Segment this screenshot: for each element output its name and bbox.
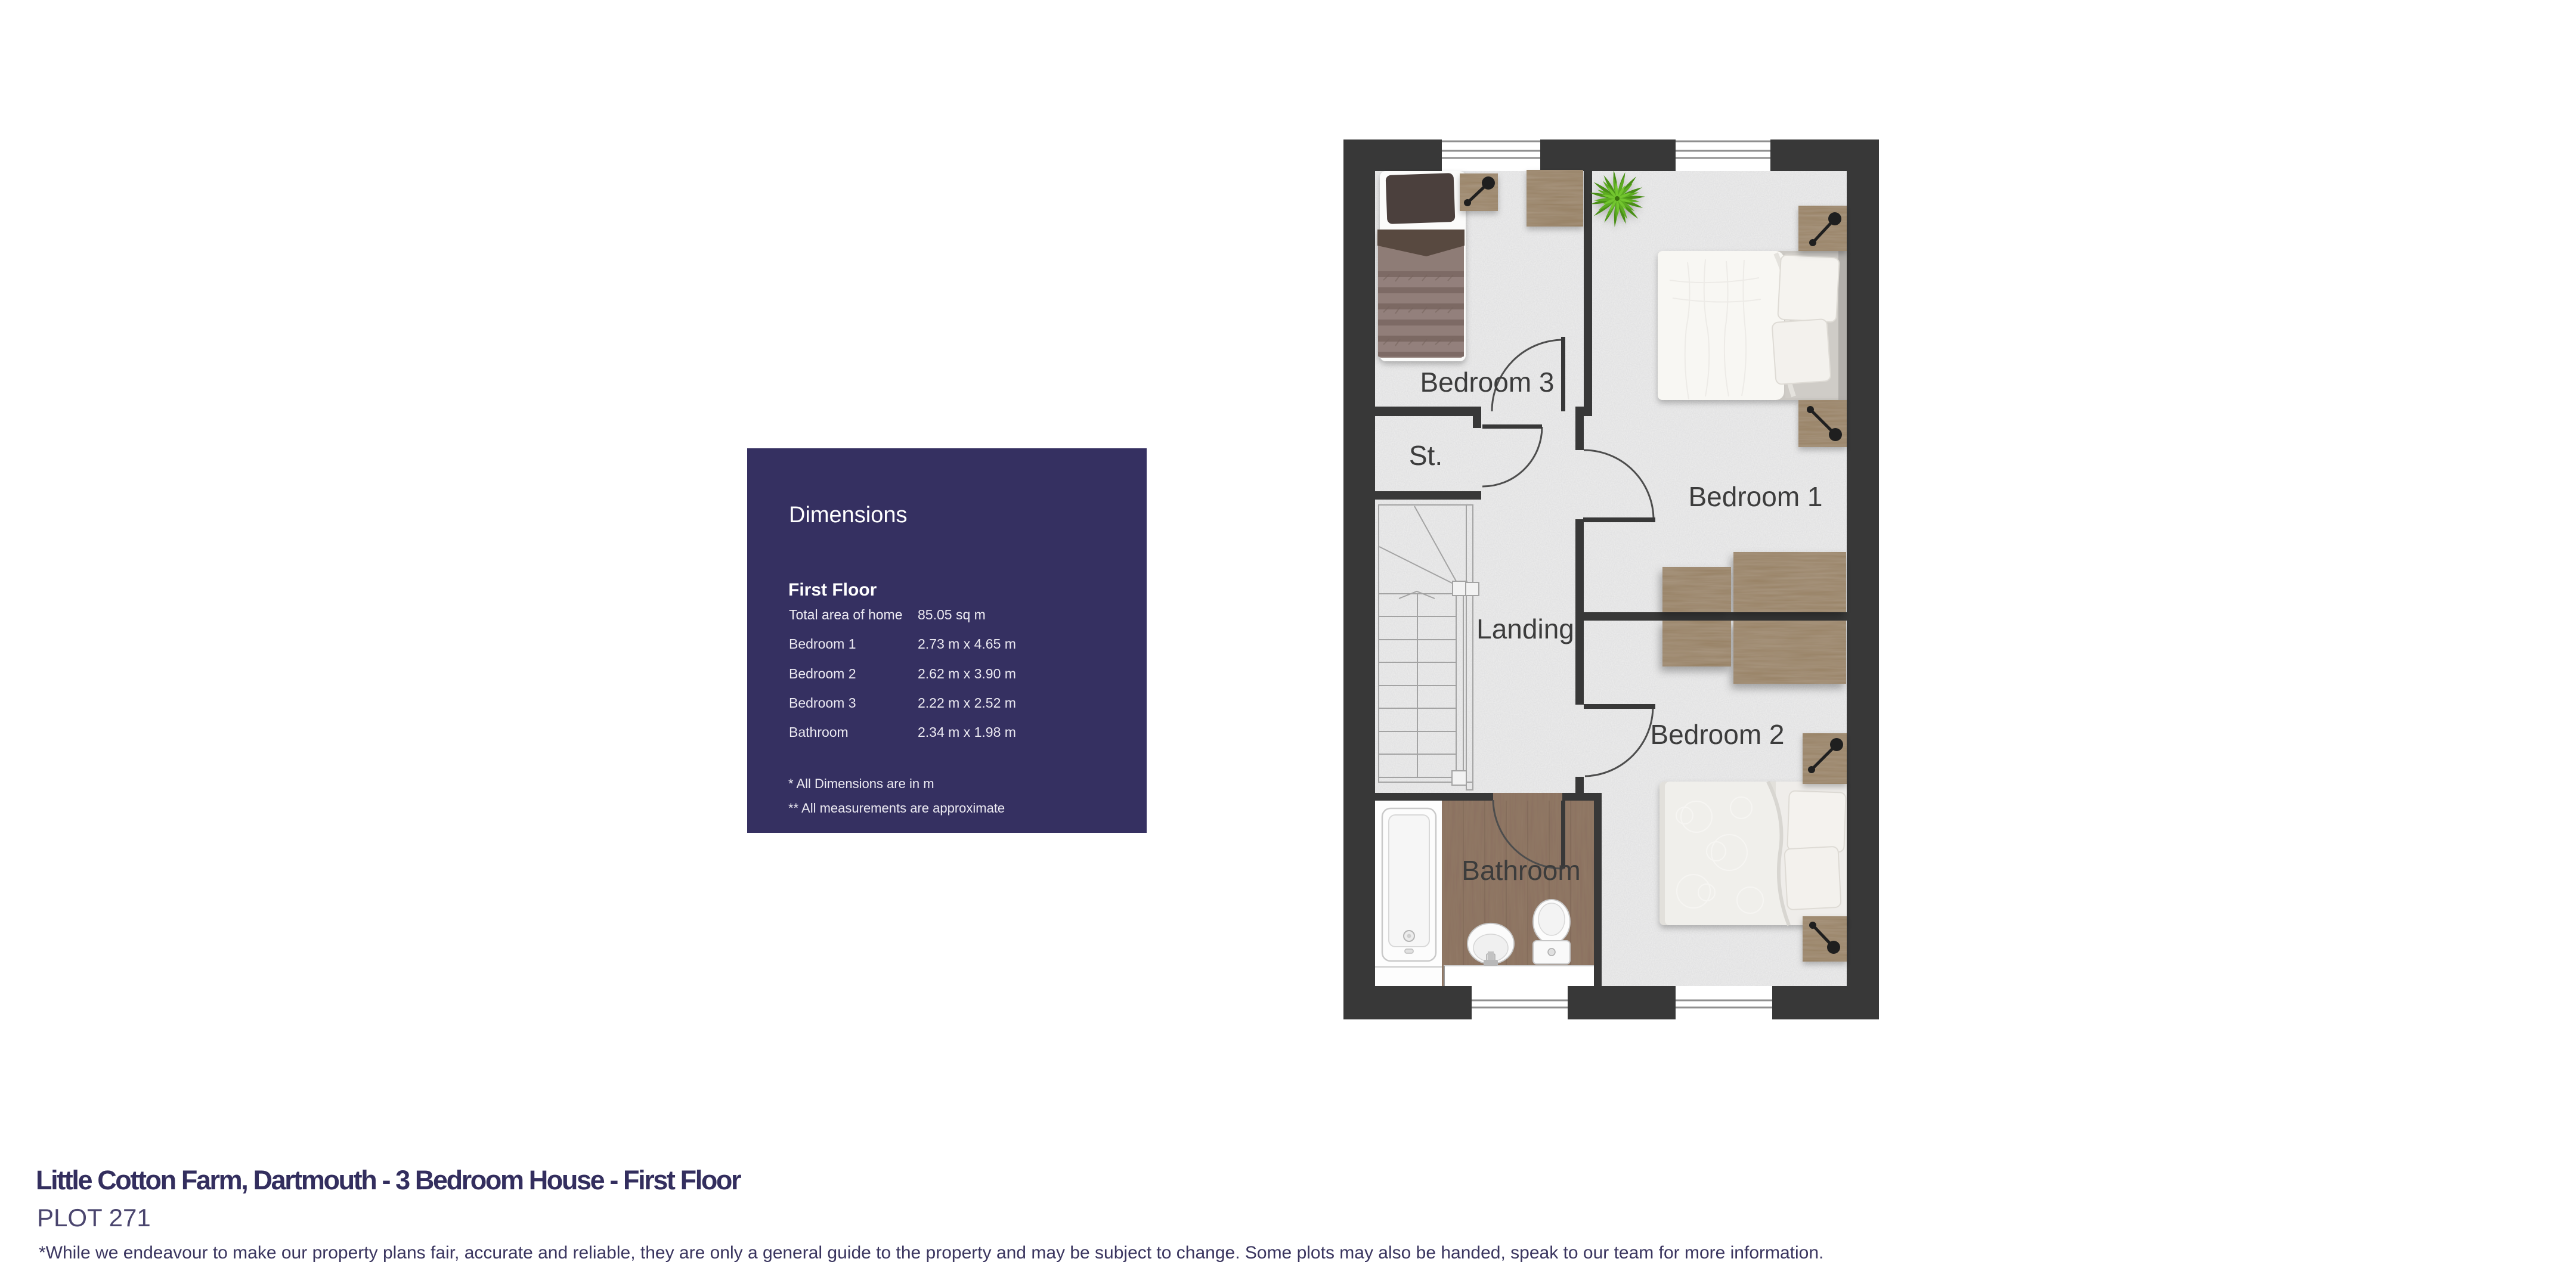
svg-text:PLOT 271: PLOT 271 [37,1204,151,1232]
svg-text:Little Cotton Farm, Dartmouth: Little Cotton Farm, Dartmouth - 3 Bedroo… [36,1165,741,1195]
svg-text:Total area of home: Total area of home [789,607,903,622]
svg-text:Bedroom 3: Bedroom 3 [1420,367,1554,398]
svg-text:Landing: Landing [1476,613,1574,644]
svg-text:85.05 sq m: 85.05 sq m [918,607,986,622]
svg-text:Bedroom 1: Bedroom 1 [789,636,856,652]
svg-text:*While we endeavour to make ou: *While we endeavour to make our property… [39,1243,1823,1263]
svg-text:St.: St. [1409,440,1442,471]
svg-text:2.62 m x 3.90 m: 2.62 m x 3.90 m [918,666,1016,681]
svg-text:Bedroom 2: Bedroom 2 [1650,719,1784,750]
svg-text:2.73 m x 4.65 m: 2.73 m x 4.65 m [918,636,1016,652]
svg-text:First Floor: First Floor [788,580,877,600]
svg-text:Bathroom: Bathroom [1462,855,1580,886]
svg-text:** All measurements are approx: ** All measurements are approximate [788,801,1005,816]
svg-text:Dimensions: Dimensions [789,503,908,528]
svg-text:Bedroom 1: Bedroom 1 [1688,481,1822,512]
svg-text:Bathroom: Bathroom [789,724,849,740]
svg-text:2.22 m x 2.52 m: 2.22 m x 2.52 m [918,695,1016,711]
svg-text:Bedroom 2: Bedroom 2 [789,666,856,681]
svg-text:Bedroom 3: Bedroom 3 [789,695,856,711]
svg-text:* All Dimensions are in m: * All Dimensions are in m [788,776,934,791]
svg-text:2.34 m x 1.98 m: 2.34 m x 1.98 m [918,724,1016,740]
